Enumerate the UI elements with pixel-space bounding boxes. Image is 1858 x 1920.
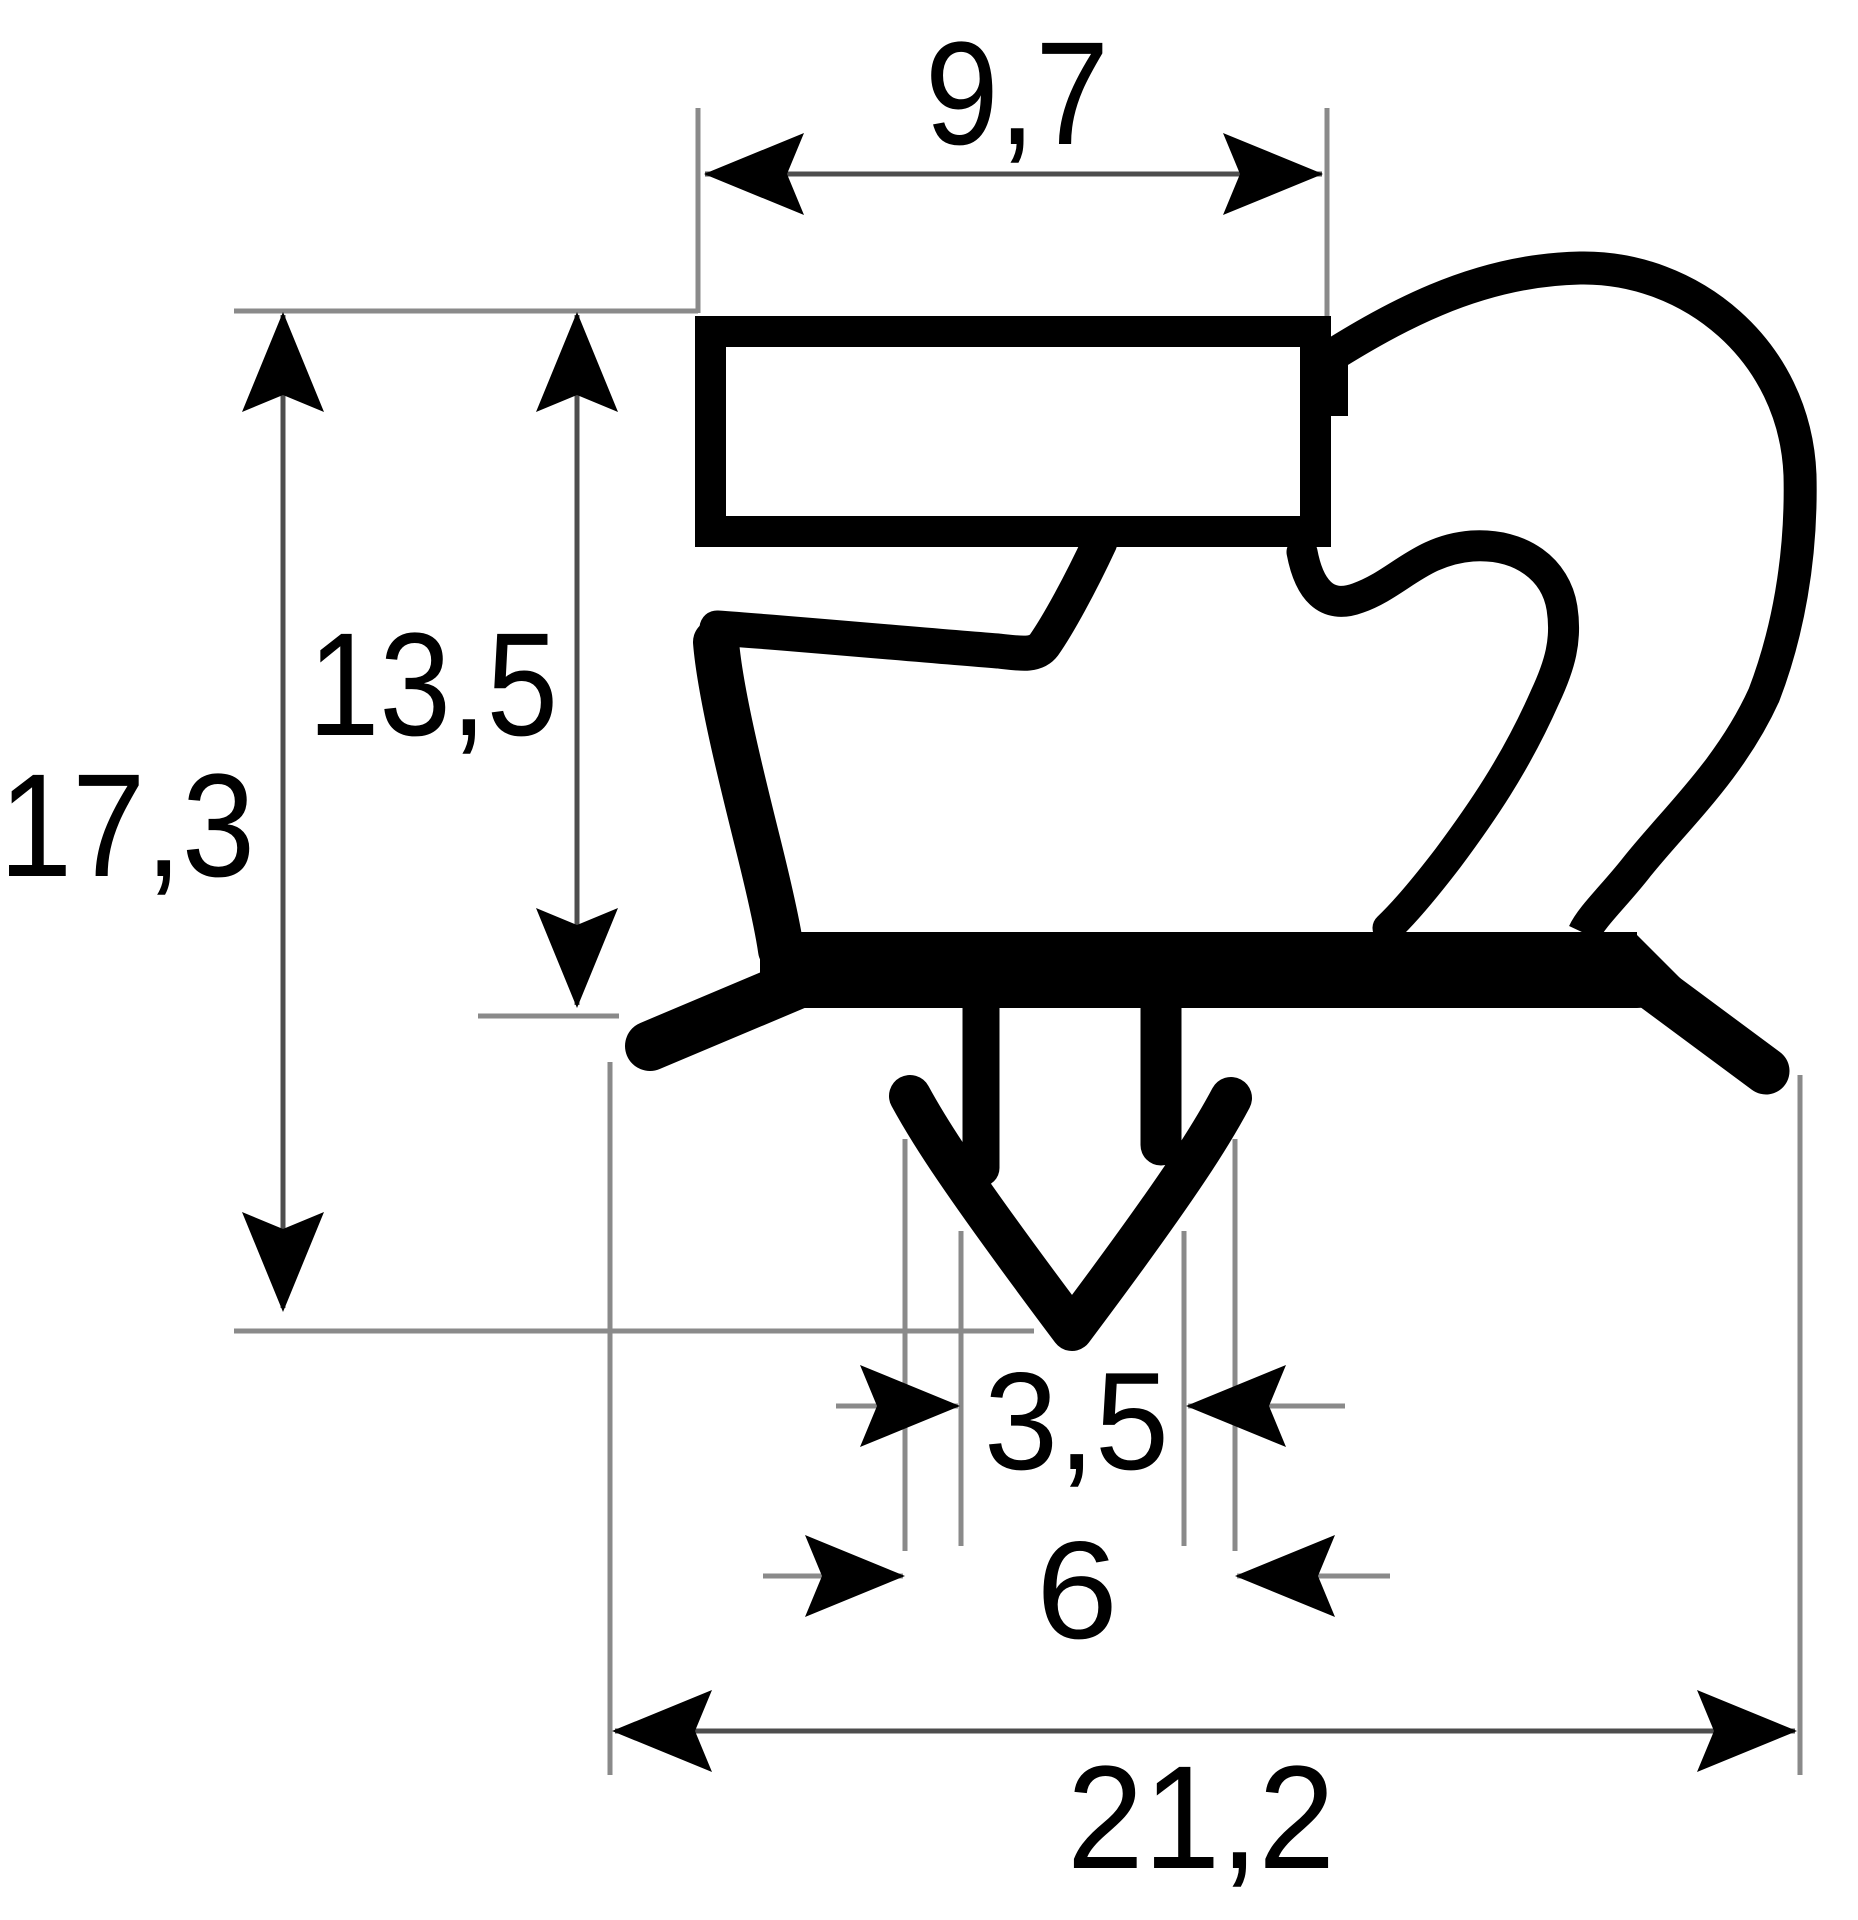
svg-text:17,3: 17,3	[0, 744, 255, 908]
svg-text:9,7: 9,7	[925, 12, 1109, 176]
svg-text:6: 6	[1036, 1513, 1118, 1668]
svg-text:21,2: 21,2	[1067, 1736, 1335, 1900]
svg-text:3,5: 3,5	[984, 1344, 1169, 1499]
svg-text:13,5: 13,5	[308, 603, 558, 767]
